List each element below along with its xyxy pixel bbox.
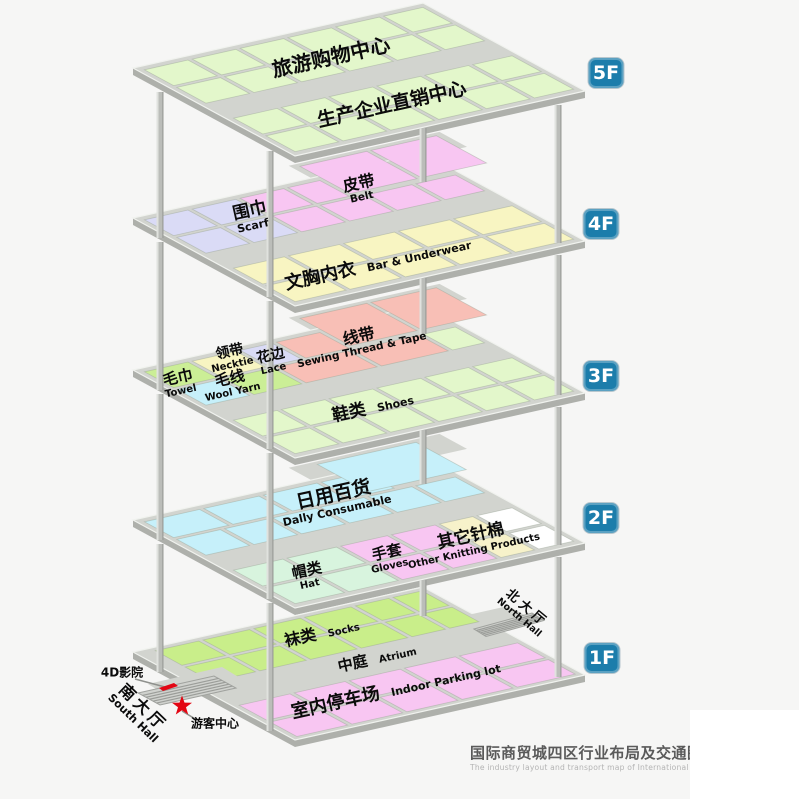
pillar-highlight xyxy=(157,544,159,672)
pillar-shade xyxy=(272,603,273,731)
floor-badge-2f: 2F xyxy=(584,503,619,533)
pillar-shade xyxy=(425,580,426,616)
white-cover xyxy=(690,710,799,799)
label-zh-text: 4D影院 xyxy=(101,666,143,679)
floor-badge-5f: 5F xyxy=(589,58,624,88)
pillar-highlight xyxy=(555,557,557,677)
pillar-shade xyxy=(425,278,426,334)
pillar-shade xyxy=(560,407,561,545)
pillar-highlight xyxy=(267,453,269,599)
trade-mart-floor-map: 旅游购物中心 生产企业直销中心 围巾 Scarf 皮带 Belt 文胸内衣 Ba… xyxy=(0,0,799,799)
pillar-shade xyxy=(272,151,273,297)
pillar-highlight xyxy=(267,603,269,731)
floor-badge-4f: 4F xyxy=(584,209,619,239)
pillar-shade xyxy=(162,544,163,672)
pillar-shade xyxy=(560,557,561,677)
pillar-highlight xyxy=(555,255,557,395)
pillar-shade xyxy=(162,92,163,238)
pillar-shade xyxy=(272,453,273,599)
pillar-shade xyxy=(425,128,426,182)
floor-badge-3f: 3F xyxy=(584,361,619,391)
pillar-highlight xyxy=(157,92,159,238)
label-4d-cinema: 4D影院 xyxy=(101,666,143,679)
pillar-highlight xyxy=(420,580,422,616)
pillar-highlight xyxy=(555,105,557,243)
label-visitor-center: 游客中心 xyxy=(191,717,239,730)
floor-badge-1f: 1F xyxy=(585,643,620,673)
pillar-highlight xyxy=(555,407,557,545)
pillar-shade xyxy=(560,255,561,395)
pillar-highlight xyxy=(157,242,159,390)
pillar-shade xyxy=(425,430,426,484)
pillar-highlight xyxy=(420,128,422,182)
pillar-shade xyxy=(162,394,163,540)
pillar-highlight xyxy=(157,394,159,540)
pillar-shade xyxy=(560,105,561,243)
pillar-highlight xyxy=(420,430,422,484)
label-zh-text: 游客中心 xyxy=(191,717,239,730)
pillar-shade xyxy=(162,242,163,390)
